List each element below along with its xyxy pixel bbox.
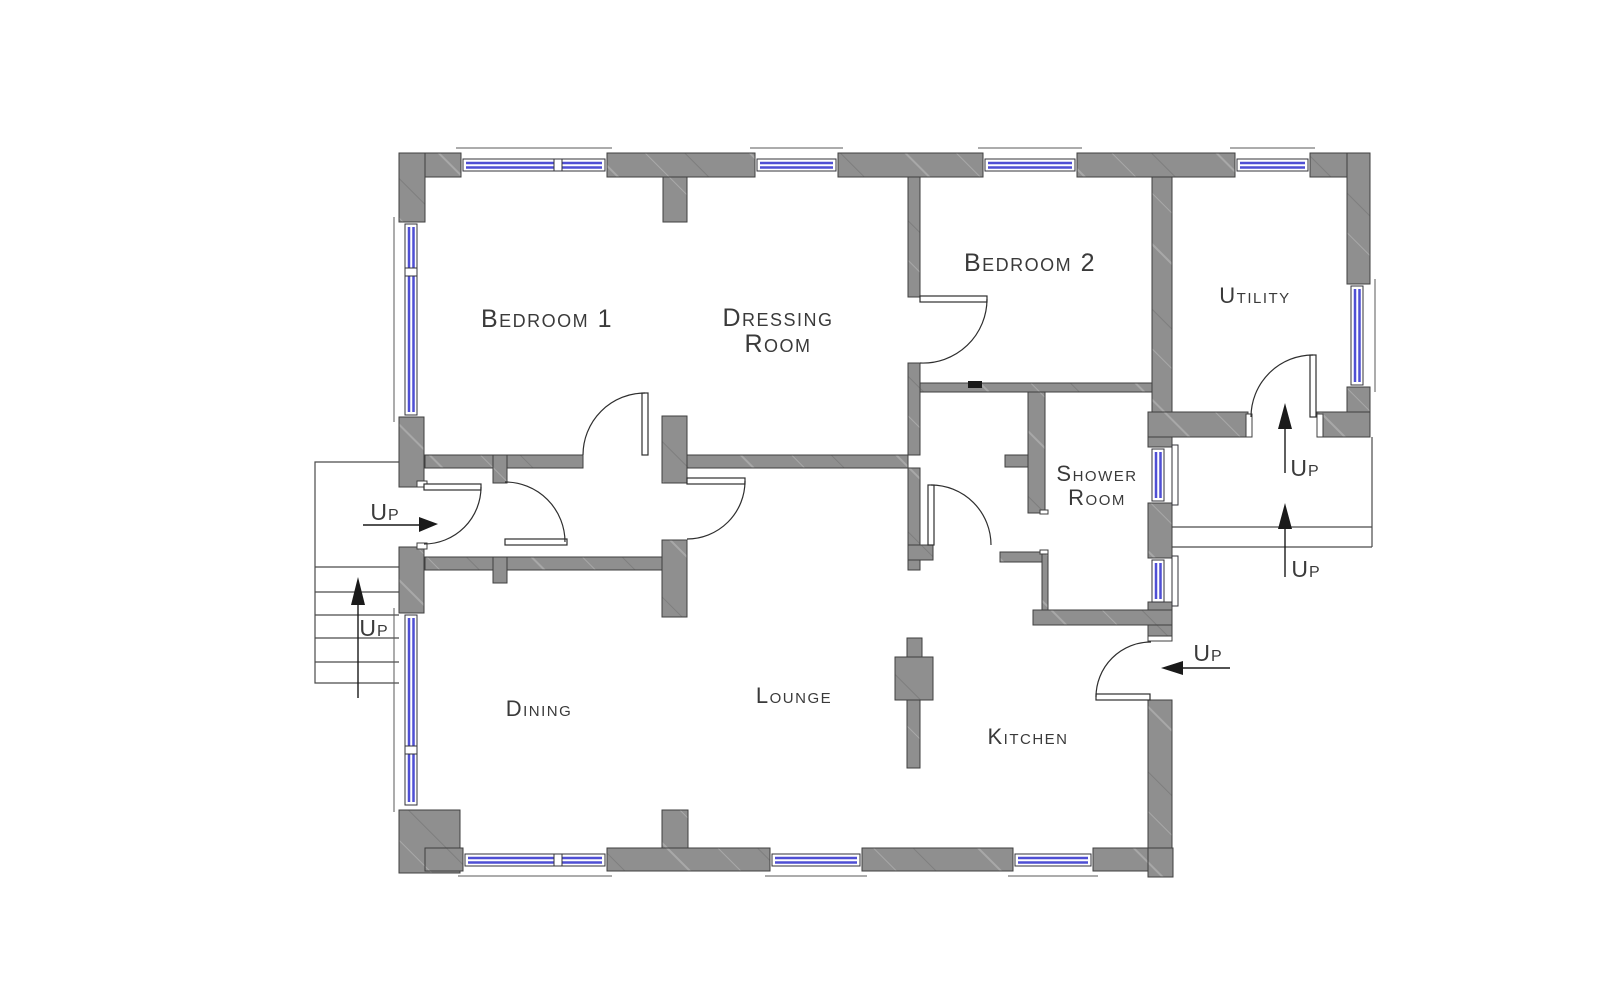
shower-room-label-line2: Room (1068, 485, 1126, 510)
wall-junction-mark (968, 381, 982, 388)
dining-label: Dining (506, 696, 573, 721)
lounge-label: Lounge (756, 683, 832, 708)
bedroom2-label: Bedroom 2 (964, 249, 1096, 277)
kitchen-label: Kitchen (987, 724, 1068, 749)
dressing-room-label-line1: Dressing (722, 304, 833, 332)
floor-plan: Bedroom 1 Dressing Room Bedroom 2 Utilit… (0, 0, 1600, 1000)
dressing-room-label-line2: Room (744, 330, 811, 358)
landing-lower-up-label: Up (1291, 556, 1320, 582)
landing-upper-up-label: Up (1290, 455, 1319, 481)
kitchen-up-label: Up (1193, 640, 1222, 666)
background (0, 0, 1600, 1000)
bedroom1-label: Bedroom 1 (481, 305, 613, 333)
stairs-left-up-label: Up (359, 615, 388, 641)
entry-up-label: Up (370, 499, 399, 525)
utility-label: Utility (1219, 283, 1290, 308)
shower-room-label-line1: Shower (1056, 461, 1137, 486)
